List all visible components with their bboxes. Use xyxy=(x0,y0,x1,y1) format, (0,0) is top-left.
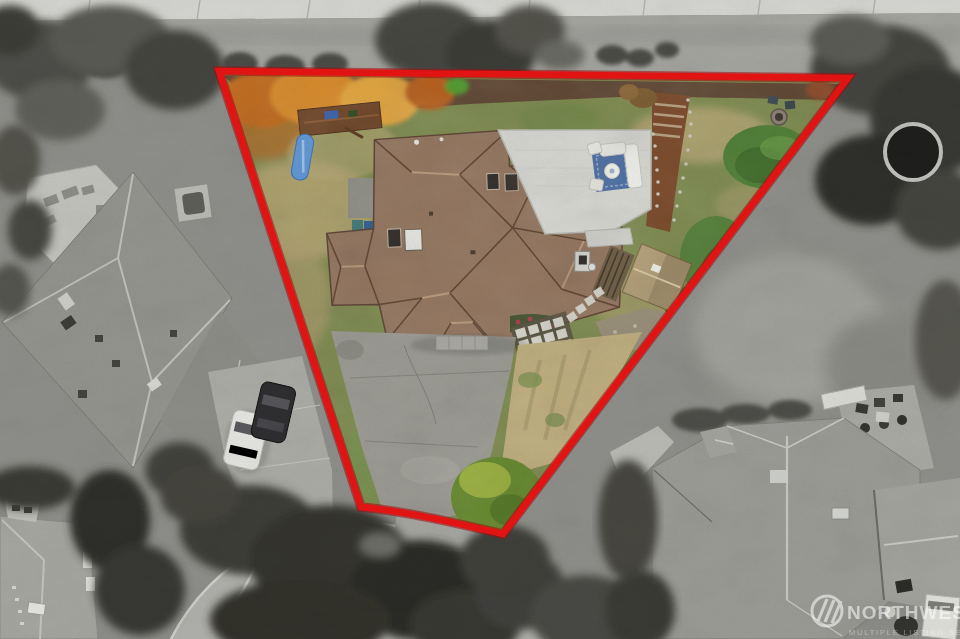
watermark-title: NORTHWEST xyxy=(847,602,960,623)
watermark-subtitle: MULTIPLE LISTING SERVICE xyxy=(849,628,960,637)
aerial-property-photo: NORTHWEST MULTIPLE LISTING SERVICE xyxy=(0,0,960,639)
